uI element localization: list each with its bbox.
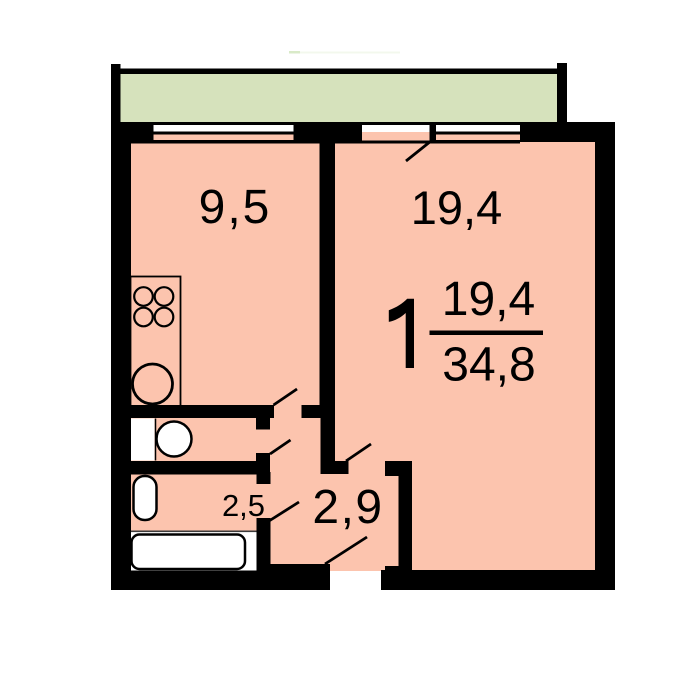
svg-text:19,4: 19,4 — [411, 181, 502, 234]
svg-text:2,5: 2,5 — [222, 488, 265, 523]
svg-text:2,9: 2,9 — [312, 481, 383, 534]
svg-text:9,5: 9,5 — [199, 181, 272, 234]
svg-text:19,4: 19,4 — [442, 273, 535, 326]
svg-text:34,8: 34,8 — [442, 339, 535, 392]
